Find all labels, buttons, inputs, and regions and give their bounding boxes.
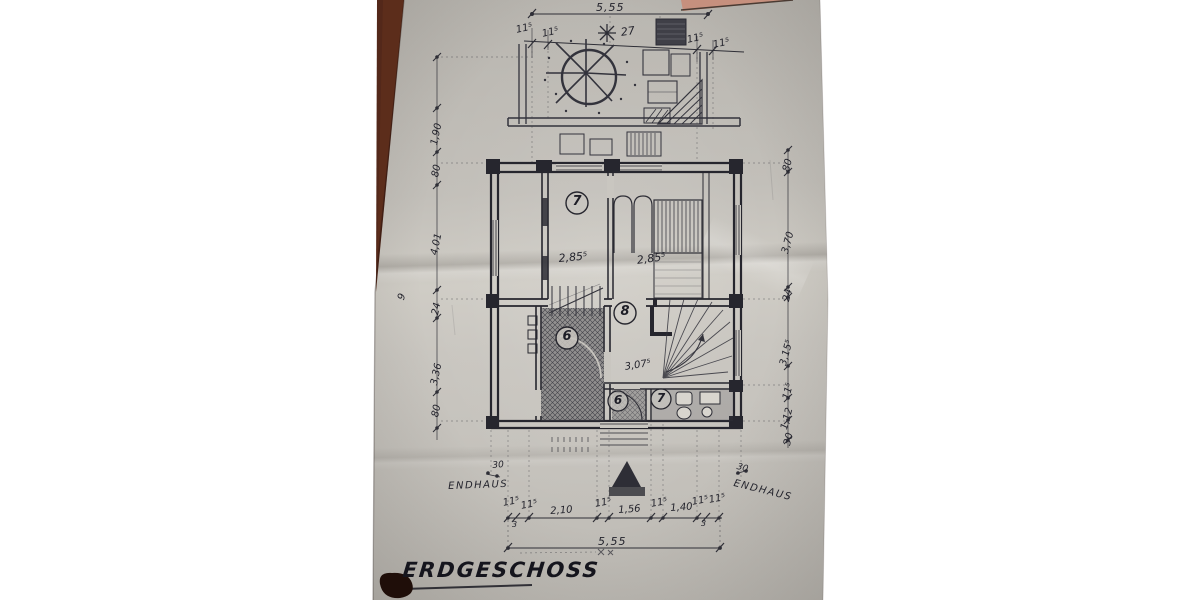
- drawing-title: ERDGESCHOSS: [401, 558, 601, 582]
- dim-bottom-total: 5,55: [598, 535, 627, 548]
- floorplan-drawing: [0, 0, 1200, 600]
- stair-wall: [652, 299, 672, 334]
- building-walls: [486, 159, 743, 429]
- toilet: [677, 407, 691, 419]
- terrace-edge: [508, 118, 740, 126]
- dim-bot-5: 1,56: [618, 503, 641, 516]
- room-number-kitchen: 6: [560, 329, 574, 344]
- dim-room-a: 2,85⁵: [558, 249, 588, 264]
- bed: [614, 196, 632, 253]
- sink: [676, 392, 692, 405]
- room-number-bedroom: 7: [570, 194, 584, 209]
- dim-step-left: 30: [492, 460, 504, 471]
- dim-bot-9: 3: [701, 519, 706, 528]
- room-number-lobby: 6: [611, 393, 625, 407]
- winder-stair-treads: [663, 299, 733, 378]
- dim-top-total: 5,55: [596, 1, 625, 14]
- dim-bot-3: 2,10: [550, 504, 573, 517]
- dim-bot-1: 3: [512, 520, 517, 529]
- dim-tree: 27: [620, 24, 636, 39]
- endhaus-label-left: ENDHAUS: [448, 479, 508, 492]
- photo-of-floorplan: 5,55 11⁵ 11⁵ 27 11⁵ 11⁵ 1,90 80 4,01 24 …: [0, 0, 1200, 600]
- room-number-bath: 7: [654, 391, 668, 405]
- hatched-block: [656, 19, 686, 45]
- pink-sheet-corner: [681, 0, 793, 11]
- title-underline: [403, 585, 532, 589]
- entrance-marker: [612, 461, 641, 487]
- dim-bot-7: 1,40: [670, 501, 693, 514]
- room-number-hall: 8: [618, 304, 632, 319]
